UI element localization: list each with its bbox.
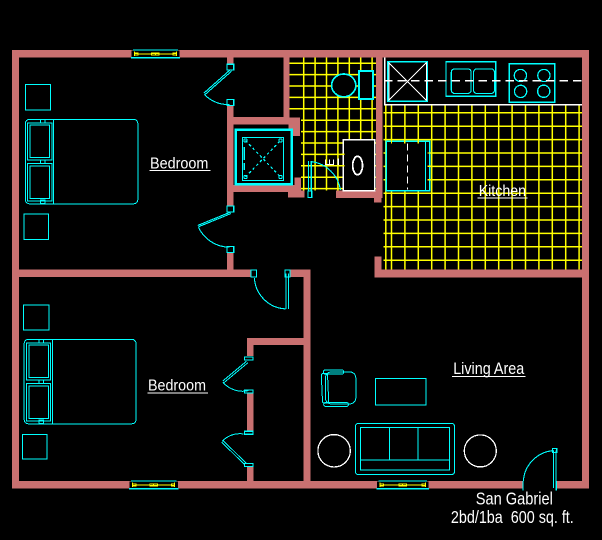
svg-text:San Gabriel: San Gabriel [476,488,553,508]
svg-text:Bedroom: Bedroom [148,378,206,395]
svg-text:Living Area: Living Area [453,360,524,378]
svg-text:2bd/1ba 600 sq. ft.: 2bd/1ba 600 sq. ft. [451,507,574,527]
